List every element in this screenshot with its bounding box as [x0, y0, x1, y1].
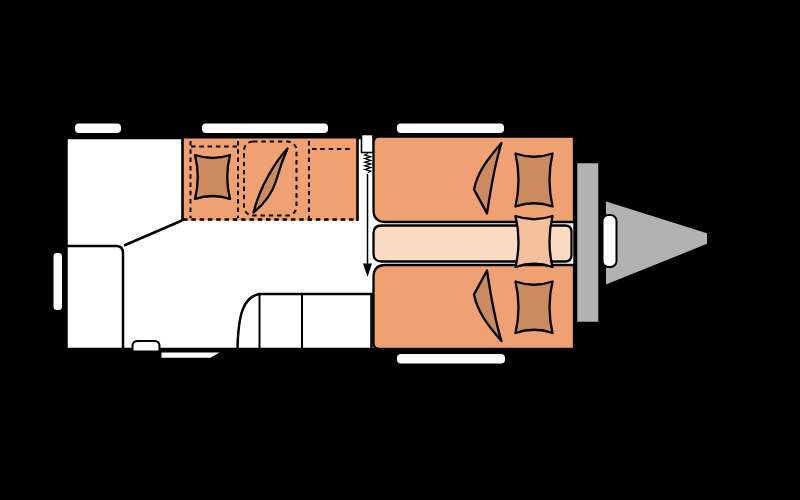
- window-bottom-front: [397, 354, 505, 364]
- coupling-handle: [603, 215, 617, 267]
- gas-locker: [577, 163, 600, 323]
- pillow-top: [516, 154, 553, 207]
- pillow-bottom: [516, 282, 553, 334]
- entrance-door: [362, 135, 374, 153]
- front-beds: [374, 137, 575, 350]
- service-step: [162, 353, 220, 358]
- heater: [133, 341, 160, 352]
- dinette-pillow: [195, 155, 230, 199]
- floorplan-canvas: [0, 0, 800, 500]
- pillow-center: [516, 216, 553, 267]
- window-top-middle: [202, 124, 328, 134]
- window-side-rear: [54, 253, 63, 310]
- dinette-bed: [183, 137, 358, 222]
- floorplan-stage: [0, 0, 800, 500]
- window-top-front: [397, 124, 504, 134]
- window-top-rear: [75, 124, 121, 134]
